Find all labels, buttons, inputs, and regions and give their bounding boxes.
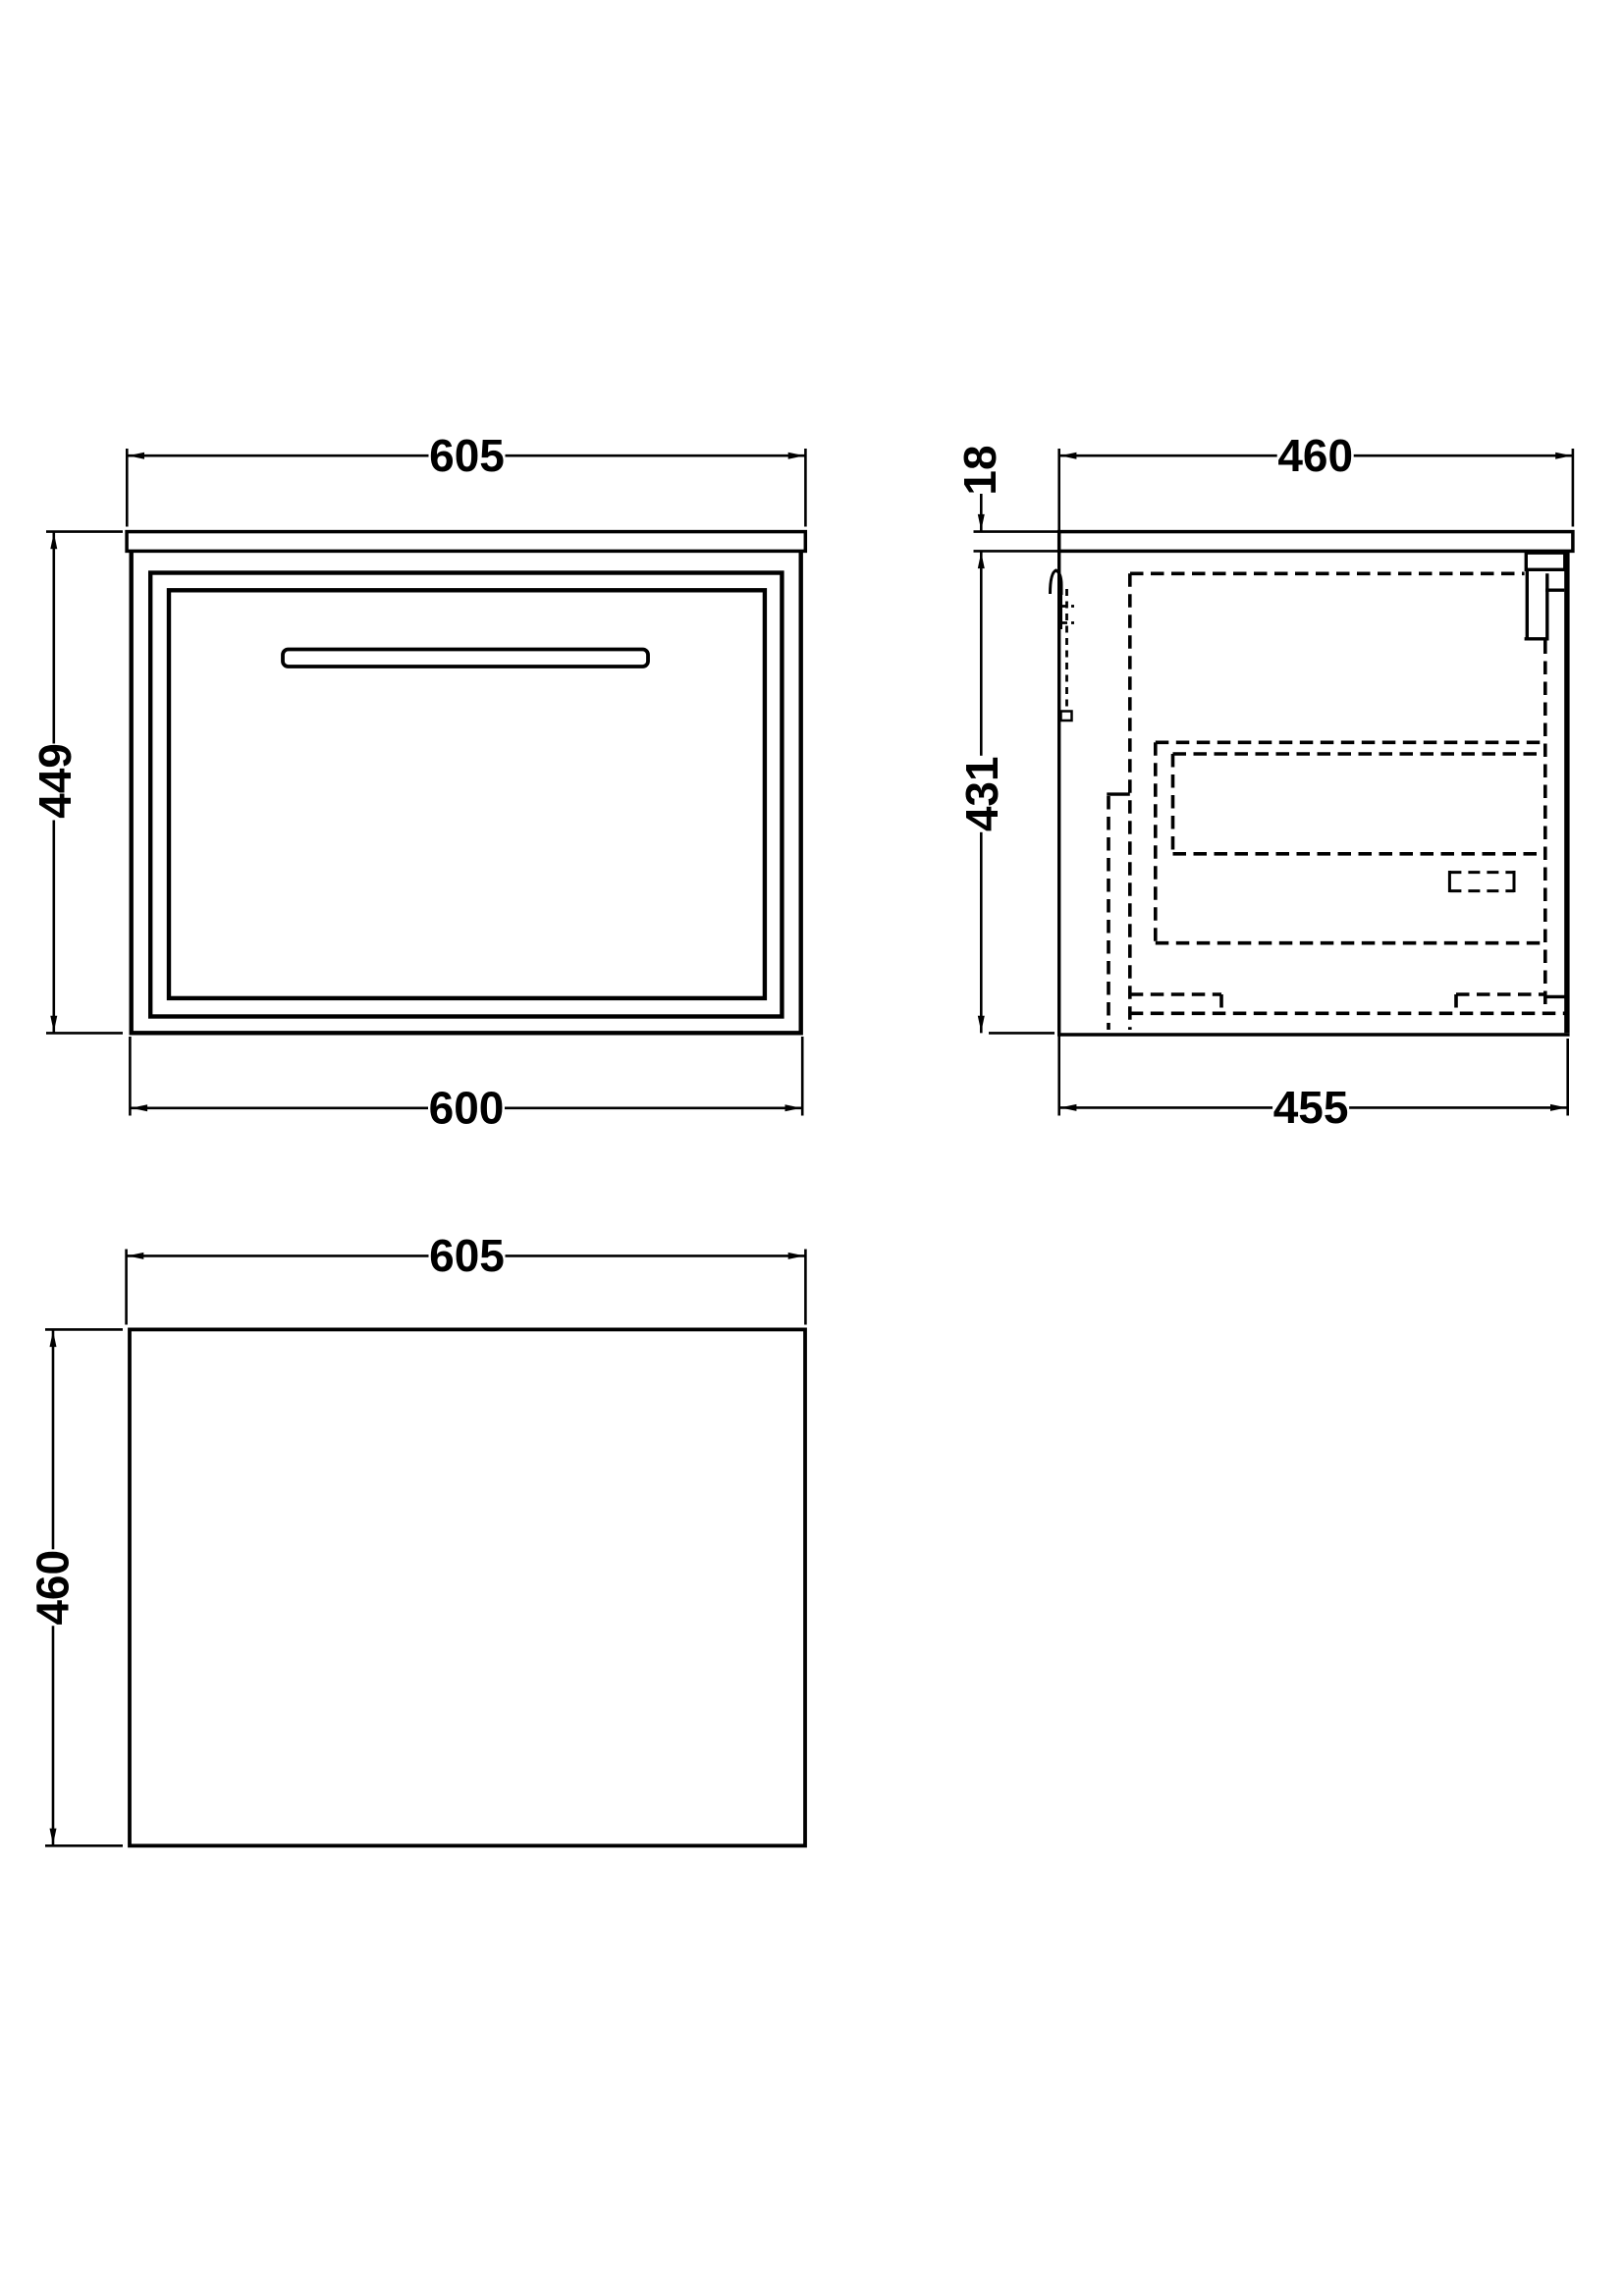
svg-text:605: 605	[429, 430, 505, 481]
svg-text:460: 460	[1277, 430, 1353, 481]
svg-text:455: 455	[1273, 1082, 1349, 1133]
svg-text:449: 449	[29, 743, 81, 819]
svg-text:605: 605	[429, 1230, 505, 1281]
svg-text:431: 431	[956, 756, 1007, 831]
svg-text:18: 18	[954, 445, 1005, 495]
svg-text:460: 460	[27, 1550, 79, 1626]
svg-text:600: 600	[429, 1082, 505, 1133]
